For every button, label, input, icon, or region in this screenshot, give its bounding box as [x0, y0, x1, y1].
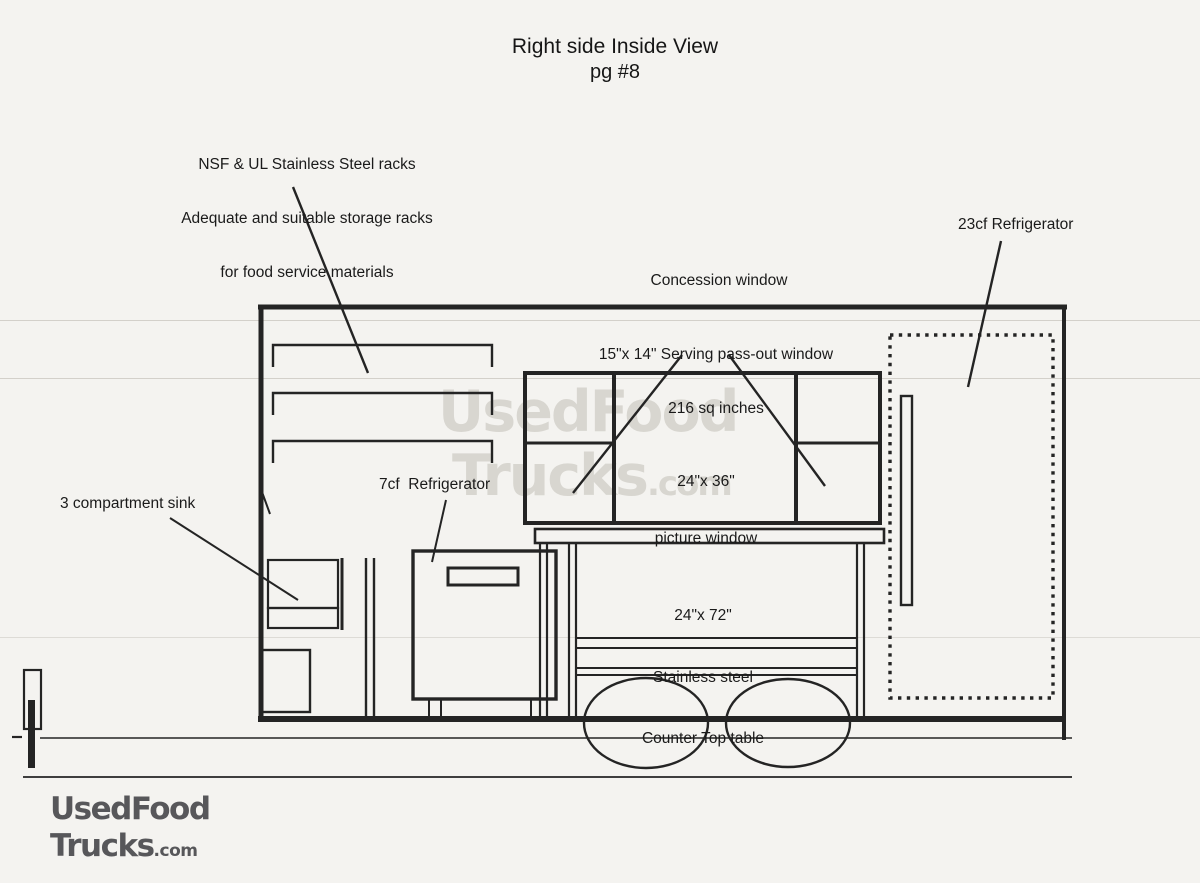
page-title: Right side Inside View — [400, 35, 830, 59]
page-number: pg #8 — [400, 61, 830, 84]
picture-window-label-line-1: 24"x 36" — [606, 472, 806, 491]
site-logo: UsedFood Trucks.com — [50, 793, 210, 868]
logo-com: .com — [154, 841, 198, 861]
jack-post — [12, 670, 41, 768]
serving-window-label: 15"x 14" Serving pass-out window 216 sq … — [566, 310, 866, 454]
sink-label: 3 compartment sink — [60, 495, 195, 513]
refrigerator-7cf-label: 7cf Refrigerator — [379, 476, 490, 494]
counter-table-label-line-3: Counter Top table — [603, 729, 803, 750]
refrigerator-7cf-drawing — [413, 551, 556, 718]
picture-window-label-line-2: picture window — [606, 529, 806, 548]
logo-usedfood: UsedFood — [50, 791, 210, 827]
picture-window-label: 24"x 36" picture window — [606, 434, 806, 586]
refrigerator-23cf-drawing — [890, 335, 1053, 698]
storage-racks — [273, 345, 492, 463]
racks-note-line-3: for food service materials — [147, 264, 467, 282]
sink-drawing — [262, 558, 374, 718]
blueprint-page: UsedFood Trucks.com — [0, 0, 1200, 883]
racks-note-line-1: NSF & UL Stainless Steel racks — [147, 156, 467, 174]
serving-window-label-line-1: 15"x 14" Serving pass-out window — [566, 346, 866, 364]
counter-table-label-line-1: 24"x 72" — [603, 606, 803, 627]
refrigerator-23cf-label: 23cf Refrigerator — [958, 216, 1073, 234]
racks-note: NSF & UL Stainless Steel racks Adequate … — [147, 120, 467, 318]
racks-note-line-2: Adequate and suitable storage racks — [147, 210, 467, 228]
counter-table-label: 24"x 72" Stainless steel Counter Top tab… — [603, 565, 803, 791]
ground-lines — [23, 738, 1072, 777]
concession-window-label: Concession window — [619, 272, 819, 290]
serving-window-label-line-2: 216 sq inches — [566, 400, 866, 418]
logo-trucks: Trucks — [50, 828, 154, 864]
counter-table-label-line-2: Stainless steel — [603, 668, 803, 689]
